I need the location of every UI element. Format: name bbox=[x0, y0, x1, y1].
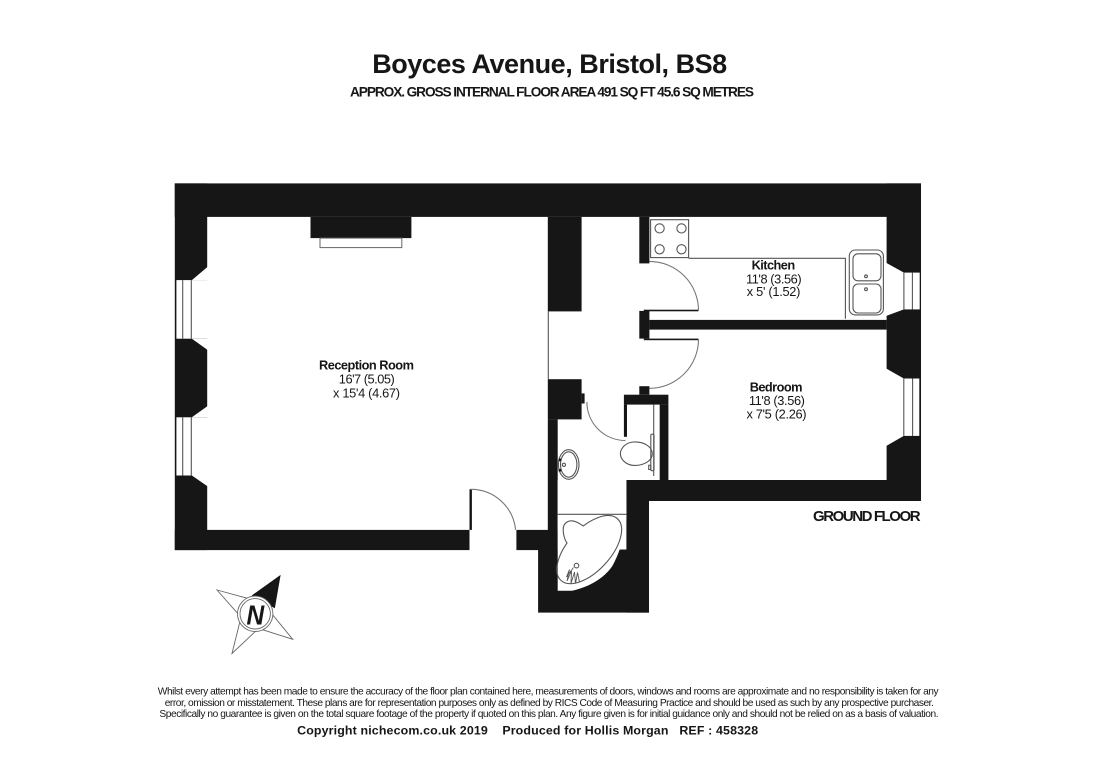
svg-text:N: N bbox=[246, 600, 265, 631]
svg-text:x 5' (1.52): x 5' (1.52) bbox=[747, 284, 801, 299]
svg-text:x 15'4 (4.67): x 15'4 (4.67) bbox=[333, 386, 400, 401]
svg-text:GROUND FLOOR: GROUND FLOOR bbox=[813, 508, 921, 525]
svg-text:16'7 (5.05): 16'7 (5.05) bbox=[339, 371, 395, 386]
svg-text:Reception Room: Reception Room bbox=[319, 357, 414, 372]
svg-text:Kitchen: Kitchen bbox=[752, 257, 796, 272]
svg-text:Specifically no guarantee is g: Specifically no guarantee is given on th… bbox=[159, 709, 938, 720]
svg-text:x 7'5 (2.26): x 7'5 (2.26) bbox=[746, 407, 806, 422]
svg-text:Copyright nichecom.co.uk 2019: Copyright nichecom.co.uk 2019 Produced f… bbox=[297, 723, 758, 737]
svg-text:error, omission or misstatemen: error, omission or misstatement. These p… bbox=[165, 698, 934, 709]
svg-text:Boyces Avenue, Bristol, BS8: Boyces Avenue, Bristol, BS8 bbox=[372, 49, 727, 79]
svg-text:APPROX. GROSS INTERNAL FLOOR A: APPROX. GROSS INTERNAL FLOOR AREA 491 SQ… bbox=[350, 85, 754, 100]
svg-text:Whilst every attempt has been: Whilst every attempt has been made to en… bbox=[158, 687, 940, 698]
